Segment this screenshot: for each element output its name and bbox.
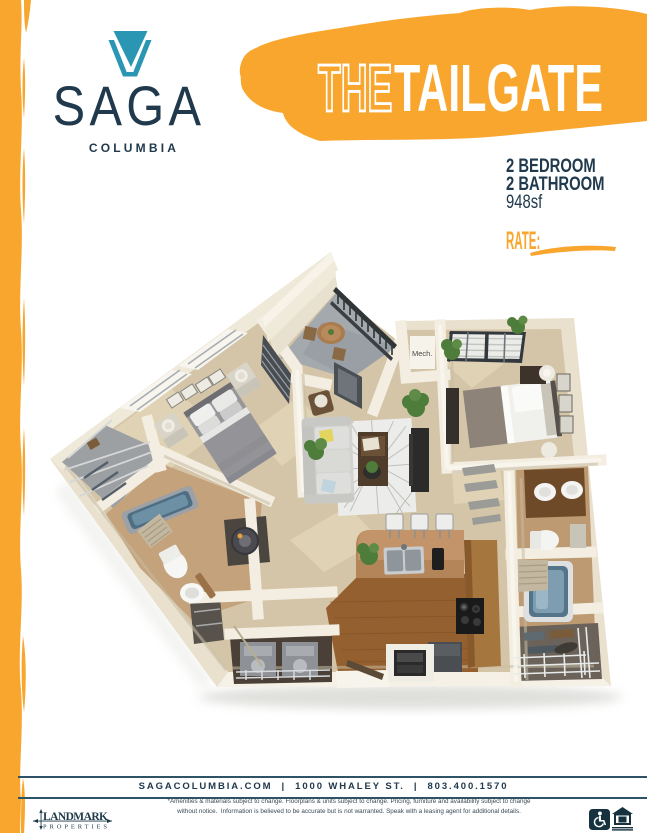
svg-text:Mech.: Mech. xyxy=(412,349,432,358)
svg-text:PROPERTIES: PROPERTIES xyxy=(43,824,108,831)
